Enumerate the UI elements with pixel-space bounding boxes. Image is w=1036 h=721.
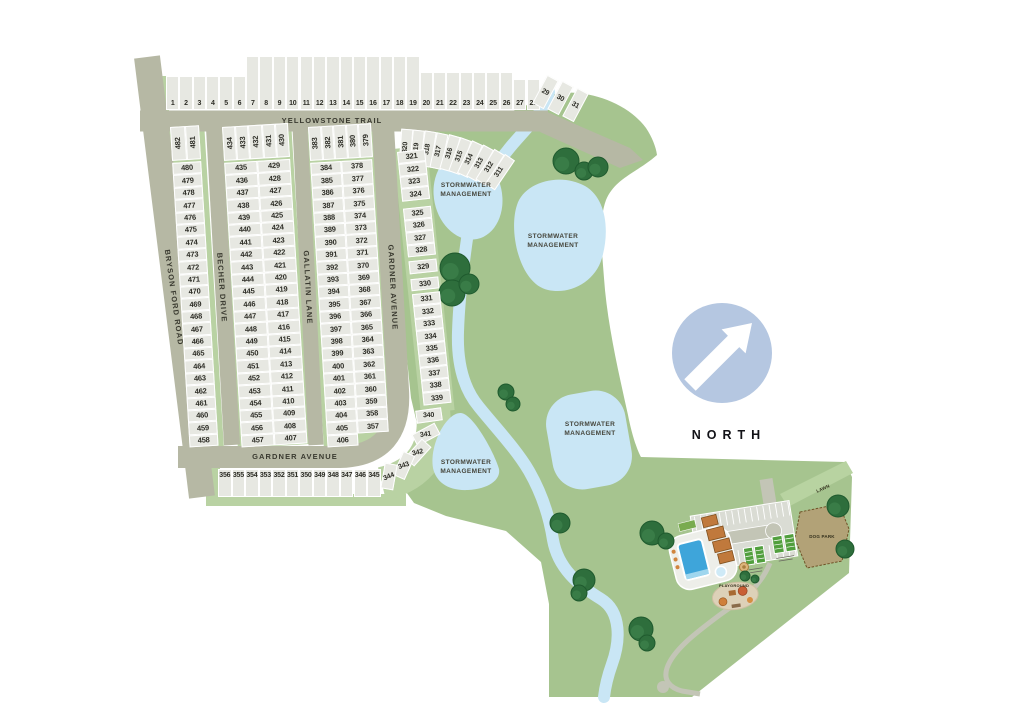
lot-number: 5: [224, 100, 228, 107]
lot-number: 440: [238, 226, 250, 234]
lot-number: 459: [197, 424, 209, 432]
lot-number: 353: [260, 472, 271, 479]
lot-number: 333: [423, 319, 436, 328]
lot: 350: [299, 469, 313, 497]
lot-number: 4: [211, 100, 215, 107]
lot-number: 455: [249, 412, 261, 420]
lot-number: 366: [360, 311, 372, 319]
lot-number: 456: [250, 424, 262, 432]
lot: 432: [248, 125, 263, 160]
lot: 434: [222, 126, 237, 161]
lot: 13: [326, 56, 339, 110]
lot-number: 420: [274, 273, 286, 281]
lot-number: 336: [427, 356, 440, 365]
lot-number: 449: [245, 337, 257, 345]
lot-number: 472: [187, 263, 199, 271]
lot: 26: [500, 72, 513, 110]
lot-number: 439: [237, 213, 249, 221]
lot-number: 340: [423, 411, 434, 418]
lot-number: 360: [364, 385, 376, 393]
lot-number: 470: [188, 288, 200, 296]
lot-number: 417: [276, 310, 288, 318]
lot-number: 27: [516, 100, 523, 107]
lot-number: 436: [235, 176, 247, 184]
lot-number: 434: [225, 137, 233, 149]
lot-number: 477: [183, 201, 195, 209]
lot-number: 437: [236, 189, 248, 197]
lot: 17: [380, 56, 393, 110]
lot-number: 412: [280, 372, 292, 380]
lot: 339: [422, 390, 451, 405]
lot-number: 435: [234, 164, 246, 172]
lot-number: 448: [244, 325, 256, 333]
lot-number: 406: [337, 436, 349, 444]
lot-number: 20: [423, 100, 430, 107]
lot-number: 400: [332, 362, 344, 370]
lot-number: 322: [407, 165, 420, 174]
lot: 328: [407, 242, 436, 257]
lot: 4: [206, 76, 219, 110]
lot-number: 324: [409, 189, 422, 198]
lot-number: 480: [181, 164, 193, 172]
lot-number: 7: [251, 100, 255, 107]
lot: 457: [240, 433, 274, 447]
lot-number: 424: [271, 224, 283, 232]
lot-number: 478: [182, 189, 194, 197]
lot-number: 404: [335, 412, 347, 420]
lot: 20: [420, 72, 433, 110]
lot-number: 398: [330, 337, 342, 345]
lot-number: 473: [186, 251, 198, 259]
lot-number: 476: [184, 214, 196, 222]
lot-number: 376: [352, 187, 364, 195]
lot-number: 16: [369, 100, 376, 107]
lot-number: 14: [343, 100, 350, 107]
lot: 1: [166, 76, 179, 110]
lot-number: 358: [366, 410, 378, 418]
lot-number: 15: [356, 100, 363, 107]
lot-number: 346: [355, 472, 366, 479]
lot-number: 475: [185, 226, 197, 234]
lot-number: 344: [383, 471, 396, 482]
lot-number: 347: [341, 472, 352, 479]
lot-number: 392: [326, 263, 338, 271]
lot-number: 13: [329, 100, 336, 107]
lot-number: 422: [273, 249, 285, 257]
lot-number: 361: [364, 373, 376, 381]
lot-number: 29: [540, 87, 550, 97]
lot-number: 375: [353, 199, 365, 207]
lot-number: 335: [425, 344, 438, 353]
lot-number: 430: [278, 134, 286, 146]
lot-number: 443: [240, 263, 252, 271]
lot-number: 393: [327, 275, 339, 283]
lot: 3: [193, 76, 206, 110]
lot: 433: [235, 125, 250, 160]
lot-number: 362: [363, 360, 375, 368]
lot-number: 369: [358, 274, 370, 282]
lot: 330: [410, 276, 439, 291]
lot-number: 399: [331, 350, 343, 358]
lot-number: 328: [415, 246, 428, 255]
lot: 353: [259, 469, 273, 497]
lot-number: 370: [357, 261, 369, 269]
lot-number: 1: [171, 100, 175, 107]
lot-number: 352: [273, 472, 284, 479]
lot-number: 419: [275, 286, 287, 294]
lot-number: 338: [429, 381, 442, 390]
lot-number: 386: [321, 189, 333, 197]
lot-number: 471: [188, 276, 200, 284]
lot-number: 354: [246, 472, 257, 479]
lot-number: 25: [489, 100, 496, 107]
lot-number: 394: [327, 288, 339, 296]
lot-number: 466: [191, 337, 203, 345]
lot-number: 2: [184, 100, 188, 107]
lot-number: 372: [355, 236, 367, 244]
lot: 11: [300, 56, 313, 110]
lot-number: 12: [316, 100, 323, 107]
lot: 7: [246, 56, 259, 110]
lot-number: 334: [424, 332, 437, 341]
lot-number: 364: [361, 335, 373, 343]
lot-number: 22: [449, 100, 456, 107]
lot: 356: [218, 469, 232, 497]
lot-number: 357: [367, 422, 379, 430]
lot-number: 390: [324, 238, 336, 246]
lot-number: 446: [243, 300, 255, 308]
lot: 23: [460, 72, 473, 110]
lot-number: 402: [333, 387, 345, 395]
lot: 481: [184, 125, 201, 160]
lot-number: 474: [185, 238, 197, 246]
lot: 24: [473, 72, 486, 110]
lot-number: 463: [194, 375, 206, 383]
lot-number: 418: [276, 298, 288, 306]
lot-number: 433: [238, 137, 246, 149]
lot-number: 378: [351, 162, 363, 170]
lot-number: 355: [233, 472, 244, 479]
lot: 19: [406, 56, 419, 110]
lot-number: 383: [311, 137, 319, 149]
lot-number: 3: [198, 100, 202, 107]
lot-number: 10: [289, 100, 296, 107]
lot-number: 413: [279, 360, 291, 368]
lot-number: 447: [243, 313, 255, 321]
lot: 431: [261, 124, 276, 159]
lot-number: 368: [358, 286, 370, 294]
lot: 379: [358, 123, 373, 158]
lot: 21: [433, 72, 446, 110]
lot-number: 421: [273, 261, 285, 269]
lot-number: 462: [194, 387, 206, 395]
lot-number: 356: [219, 472, 230, 479]
lot-number: 425: [270, 211, 282, 219]
lot-number: 403: [334, 399, 346, 407]
lot-number: 323: [408, 177, 421, 186]
lot-number: 332: [421, 307, 434, 316]
lot-number: 423: [272, 236, 284, 244]
lot-layer: 1234567891011121314151617181920212223242…: [0, 0, 1036, 721]
lot-number: 438: [237, 201, 249, 209]
lot-number: 432: [251, 136, 259, 148]
lot-number: 395: [328, 300, 340, 308]
lot-number: 482: [174, 137, 182, 149]
lot-number: 18: [396, 100, 403, 107]
lot: 16: [366, 56, 379, 110]
lot-number: 351: [287, 472, 298, 479]
lot: 10: [286, 56, 299, 110]
lot: 347: [340, 469, 354, 497]
lot-number: 479: [182, 176, 194, 184]
lot: 357: [357, 419, 389, 433]
lot-number: 377: [352, 175, 364, 183]
lot-number: 454: [249, 399, 261, 407]
lot-number: 26: [503, 100, 510, 107]
lot: 354: [245, 469, 259, 497]
lot-number: 408: [283, 422, 295, 430]
lot-number: 326: [412, 221, 425, 230]
lot: 430: [274, 123, 289, 158]
lot-number: 441: [239, 238, 251, 246]
lot-number: 21: [436, 100, 443, 107]
lot-number: 381: [336, 136, 344, 148]
lot: 324: [401, 186, 430, 201]
lot-number: 429: [267, 162, 279, 170]
lot: 351: [286, 469, 300, 497]
lot-number: 382: [324, 137, 332, 149]
lot-number: 467: [191, 325, 203, 333]
lot-number: 481: [189, 136, 197, 148]
lot-number: 349: [314, 472, 325, 479]
lot-number: 457: [251, 436, 263, 444]
lot-number: 11: [303, 100, 310, 107]
lot: 27: [513, 79, 526, 110]
lot-number: 458: [198, 436, 210, 444]
lot-number: 453: [248, 387, 260, 395]
lot-number: 17: [383, 100, 390, 107]
lot-number: 465: [192, 350, 204, 358]
lot-number: 379: [362, 134, 370, 146]
lot: 329: [409, 259, 438, 274]
lot-number: 450: [246, 350, 258, 358]
lot: 345: [367, 469, 381, 497]
lot-number: 445: [242, 288, 254, 296]
lot: 355: [232, 469, 246, 497]
lot-number: 350: [301, 472, 312, 479]
lot: 349: [313, 469, 327, 497]
lot: 15: [353, 56, 366, 110]
lot: 8: [259, 56, 272, 110]
lot-number: 461: [195, 399, 207, 407]
lot: 344: [380, 462, 397, 490]
lot-number: 388: [323, 214, 335, 222]
lot: 352: [272, 469, 286, 497]
lot-number: 330: [419, 279, 432, 288]
lot-number: 469: [189, 300, 201, 308]
lot-number: 431: [265, 135, 273, 147]
lot-number: 428: [268, 174, 280, 182]
lot: 458: [189, 433, 219, 447]
lot-number: 321: [405, 152, 418, 161]
lot-number: 371: [356, 249, 368, 257]
lot-number: 468: [190, 313, 202, 321]
lot: 348: [326, 469, 340, 497]
lot-number: 414: [279, 348, 291, 356]
lot-number: 19: [409, 100, 416, 107]
lot: 5: [219, 76, 232, 110]
lot: 14: [340, 56, 353, 110]
lot: 6: [233, 76, 246, 110]
lot: 25: [486, 72, 499, 110]
lot-number: 415: [278, 335, 290, 343]
lot-number: 8: [264, 100, 268, 107]
lot-number: 451: [246, 362, 258, 370]
lot: 9: [273, 56, 286, 110]
lot-number: 407: [284, 434, 296, 442]
lot-number: 9: [278, 100, 282, 107]
lot-number: 452: [247, 374, 259, 382]
lot-number: 329: [417, 262, 430, 271]
lot-number: 444: [241, 275, 253, 283]
lot-number: 30: [555, 93, 565, 103]
lot-number: 359: [365, 397, 377, 405]
lot-number: 401: [333, 374, 345, 382]
lot-number: 373: [355, 224, 367, 232]
lot-number: 23: [463, 100, 470, 107]
lot-number: 391: [325, 251, 337, 259]
lot-number: 348: [328, 472, 339, 479]
lot-number: 416: [277, 323, 289, 331]
lot-number: 365: [361, 323, 373, 331]
lot-number: 384: [320, 164, 332, 172]
lot-number: 380: [349, 135, 357, 147]
lot-number: 331: [420, 295, 433, 304]
lot-number: 339: [431, 393, 444, 402]
lot-number: 409: [282, 410, 294, 418]
lot-number: 6: [238, 100, 242, 107]
lot-number: 426: [270, 199, 282, 207]
lot: 407: [273, 431, 307, 445]
lot-number: 345: [368, 472, 379, 479]
lot-number: 24: [476, 100, 483, 107]
lot-number: 427: [269, 187, 281, 195]
site-plan-map: 1234567891011121314151617181920212223242…: [0, 0, 1036, 721]
lot-number: 363: [362, 348, 374, 356]
lot-number: 327: [414, 233, 427, 242]
lot-number: 343: [398, 460, 411, 470]
lot-number: 31: [570, 100, 580, 110]
lot-number: 460: [196, 412, 208, 420]
lot-number: 311: [494, 166, 506, 179]
lot-number: 410: [282, 397, 294, 405]
lot: 22: [446, 72, 459, 110]
lot: 12: [313, 56, 326, 110]
lot-number: 341: [420, 430, 432, 438]
lot-number: 397: [330, 325, 342, 333]
lot: 346: [354, 469, 368, 497]
lot: 18: [393, 56, 406, 110]
lot-number: 411: [281, 385, 293, 393]
lot-number: 385: [321, 176, 333, 184]
lot-number: 337: [428, 369, 441, 378]
lot-number: 325: [411, 209, 424, 218]
lot-number: 389: [324, 226, 336, 234]
lot-number: 405: [336, 424, 348, 432]
lot-number: 396: [329, 313, 341, 321]
lot: 340: [415, 407, 443, 423]
lot-number: 464: [193, 362, 205, 370]
lot: 406: [327, 433, 359, 447]
lot-number: 387: [322, 201, 334, 209]
lot-number: 442: [240, 251, 252, 259]
lot-number: 374: [354, 212, 366, 220]
lot-number: 367: [359, 298, 371, 306]
lot: 2: [179, 76, 192, 110]
